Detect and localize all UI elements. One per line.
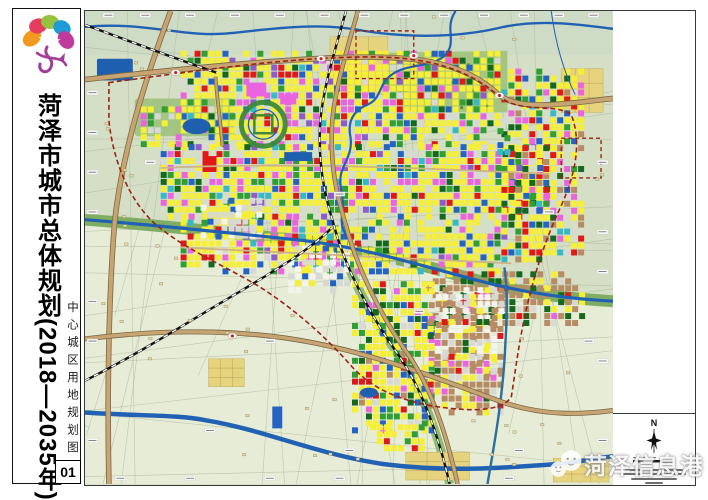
planning-poster: 菏泽市城市总体规划(2018—2035年) 中心城区用地规划图 01 N xyxy=(0,0,708,500)
north-label: N xyxy=(613,419,695,428)
peony-logo-icon xyxy=(19,15,75,81)
compass-icon xyxy=(645,428,663,454)
title-sidebar: 菏泽市城市总体规划(2018—2035年) 中心城区用地规划图 01 xyxy=(12,8,81,484)
land-use-map xyxy=(84,10,614,486)
sheet-number: 01 xyxy=(55,460,81,484)
attribution-text xyxy=(613,469,695,485)
panel-divider xyxy=(613,413,695,414)
north-arrow-block: N xyxy=(613,419,695,487)
map-margin-panel: N xyxy=(613,10,696,486)
poster-subtitle: 中心城区用地规划图 xyxy=(66,301,78,459)
scale-bar xyxy=(632,457,676,466)
